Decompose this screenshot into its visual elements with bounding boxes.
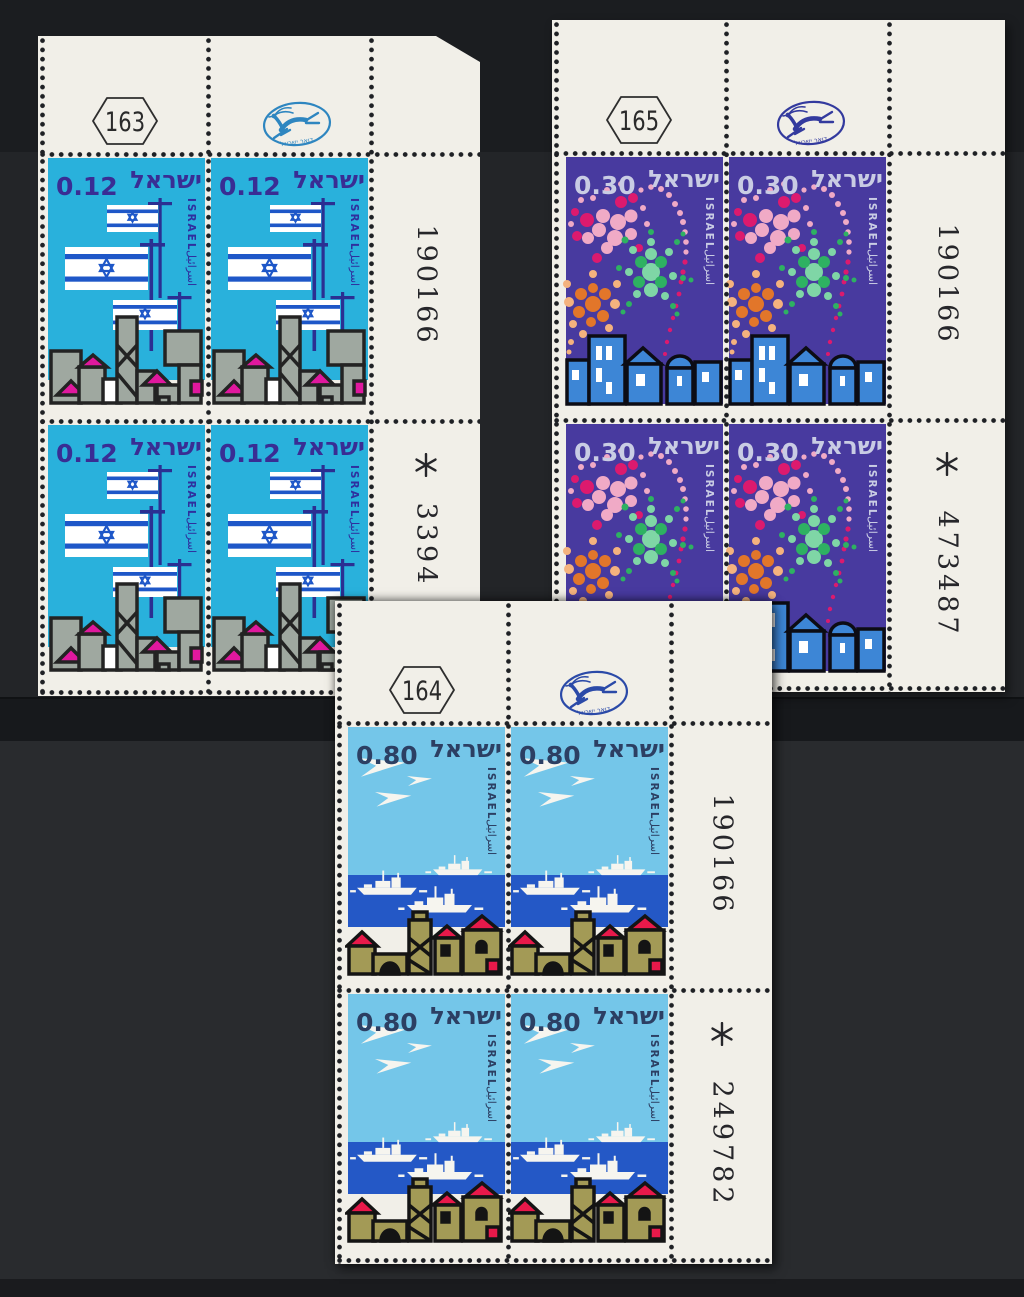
asterisk-mark [710,1022,734,1046]
asterisk-mark [935,452,959,476]
perforation-line [335,1257,772,1264]
israel-post-deer-icon [261,99,333,149]
plate-block-164: 164 190166 249782 [335,601,772,1264]
stamp-0.12-flags [208,155,371,422]
right-selvage: 190166 249782 [671,724,772,1258]
stamp-0.12-flags [45,155,208,422]
sheet-serial-number: 190166 [706,793,737,914]
plate-number: 164 [402,675,442,706]
israel-post-deer-icon [775,98,847,148]
plate-number-hexagon: 163 [92,96,158,146]
control-number: 249782 [706,1080,737,1207]
asterisk-mark [414,453,438,477]
stamp-grid [345,724,671,1258]
background-footer-strip [0,1279,1024,1297]
plate-block-165: 165 190166 473487 [552,20,1005,692]
plate-number-hexagon: 165 [606,95,672,145]
control-number: 473487 [932,510,963,637]
stamp-0.80-jets-ships [508,724,671,991]
control-number: 3394 [410,503,441,588]
stamp-grid [45,155,371,689]
sheet-serial-number: 190166 [932,223,963,344]
perforation-line [336,601,343,1264]
stamp-0.80-jets-ships [508,991,671,1258]
plate-number: 165 [619,105,659,136]
perforation-line [553,20,560,692]
stamp-0.80-jets-ships [345,991,508,1258]
stamp-0.30-fireworks [563,154,726,421]
plate-number: 163 [105,106,145,137]
plate-block-163: 163 190166 3394 [38,36,480,696]
israel-post-deer-icon [558,668,630,718]
stamp-0.30-fireworks [726,154,889,421]
right-selvage: 190166 473487 [889,154,1005,688]
plate-number-hexagon: 164 [389,665,455,715]
stamp-0.12-flags [45,422,208,689]
stamp-0.80-jets-ships [345,724,508,991]
sheet-serial-number: 190166 [410,224,441,345]
